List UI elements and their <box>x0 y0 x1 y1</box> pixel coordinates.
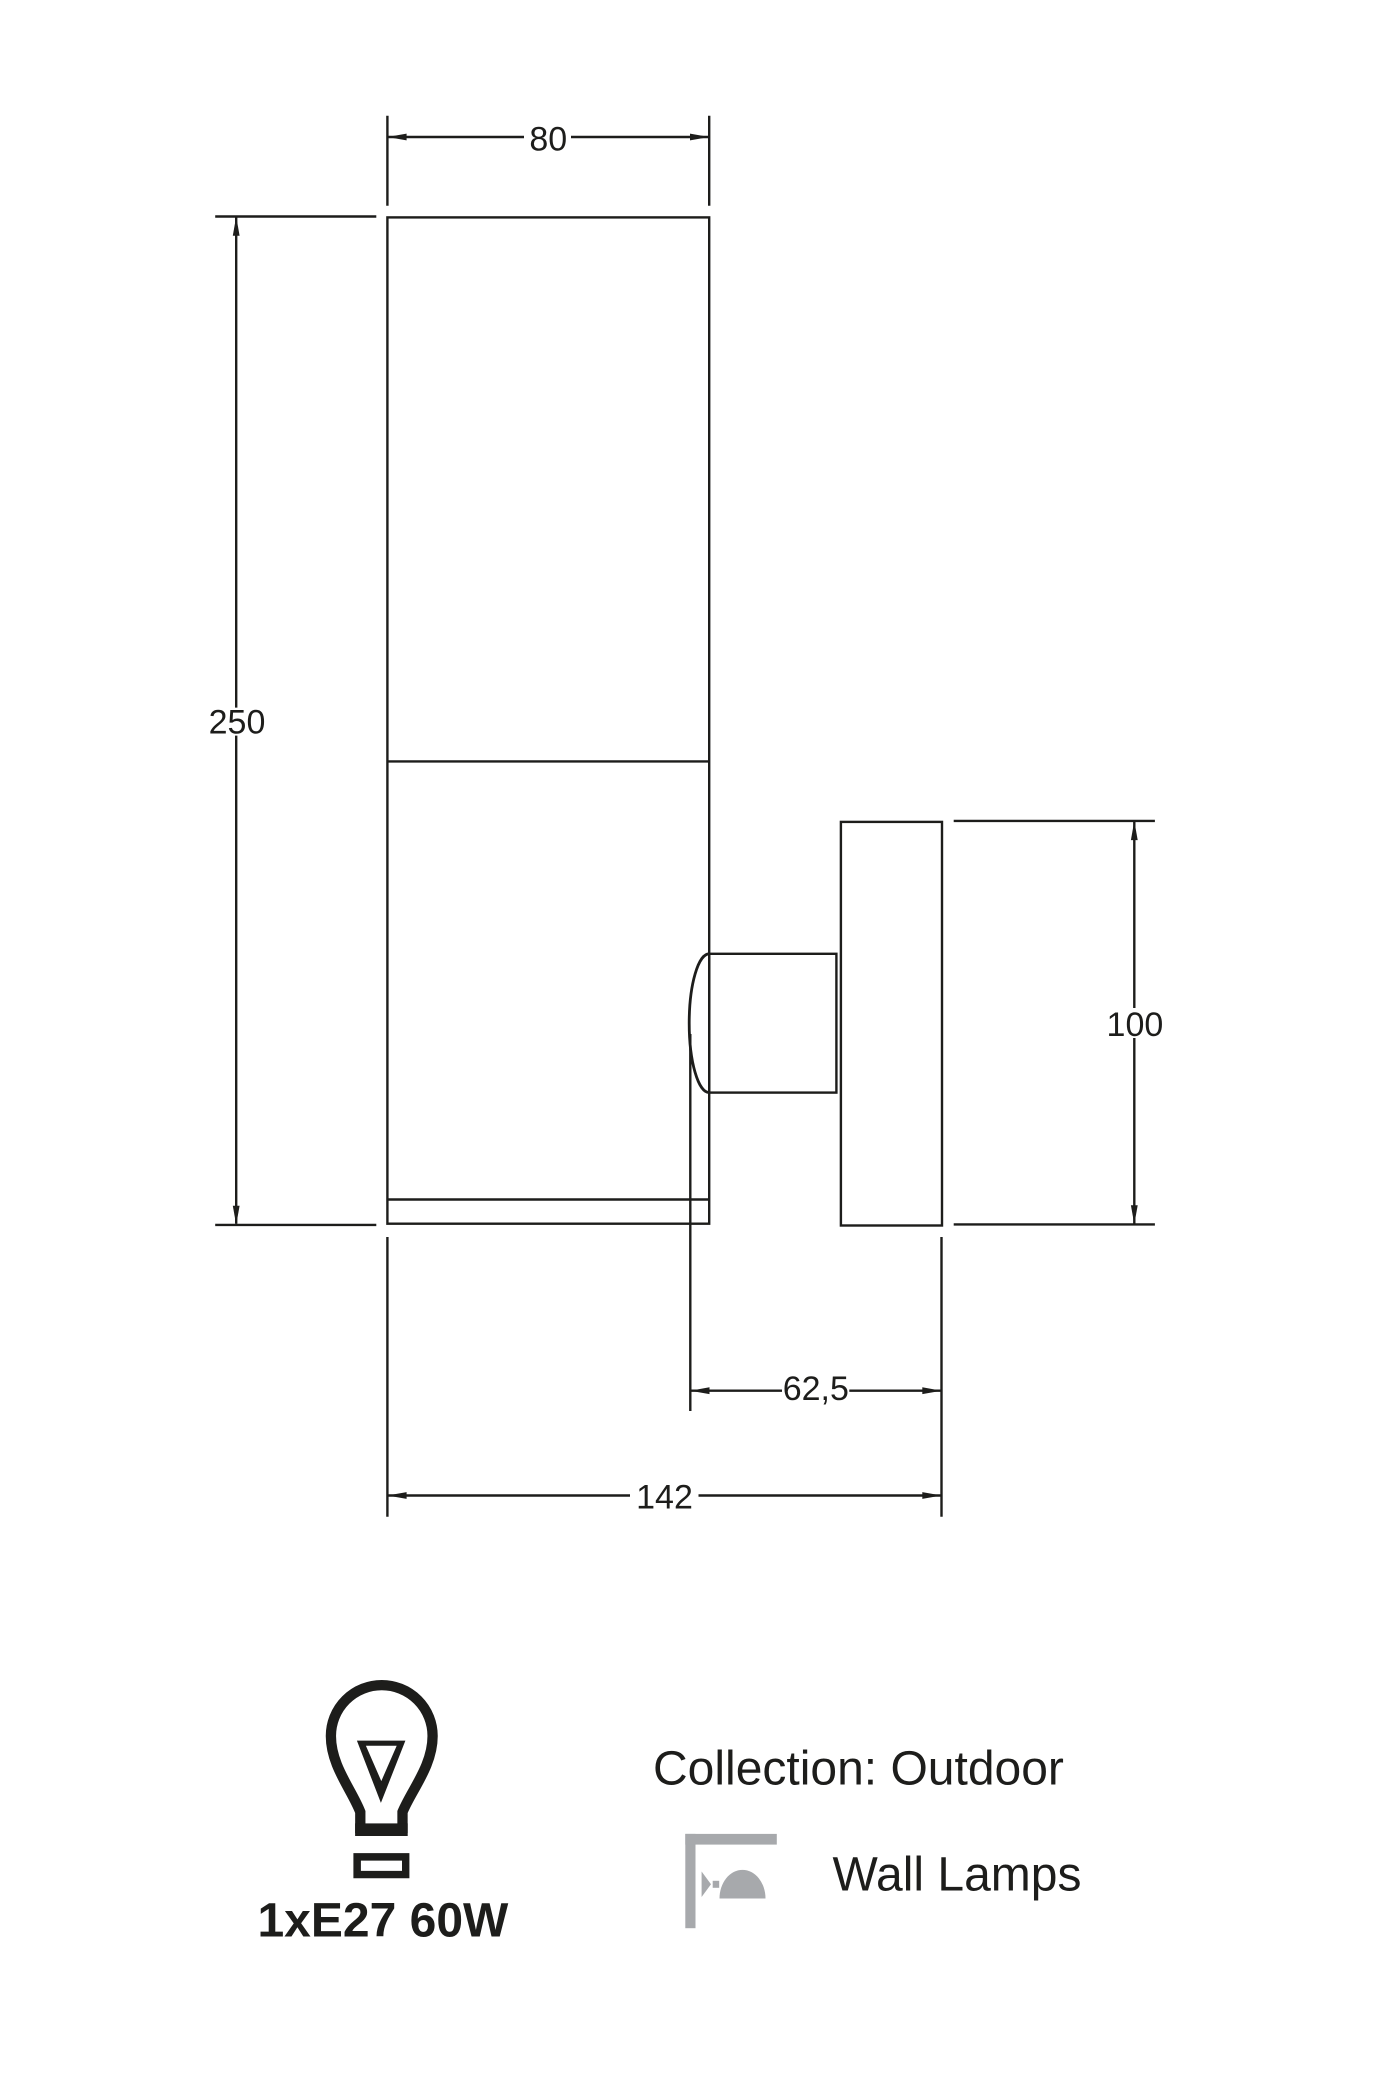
svg-text:62,5: 62,5 <box>783 1370 849 1408</box>
svg-text:Collection: Outdoor: Collection: Outdoor <box>653 1743 1064 1796</box>
svg-text:250: 250 <box>209 704 266 742</box>
svg-text:142: 142 <box>636 1479 693 1517</box>
svg-text:Wall Lamps: Wall Lamps <box>833 1849 1082 1902</box>
svg-text:1xE27 60W: 1xE27 60W <box>257 1895 509 1948</box>
svg-text:100: 100 <box>1107 1006 1164 1044</box>
svg-text:80: 80 <box>529 121 567 159</box>
